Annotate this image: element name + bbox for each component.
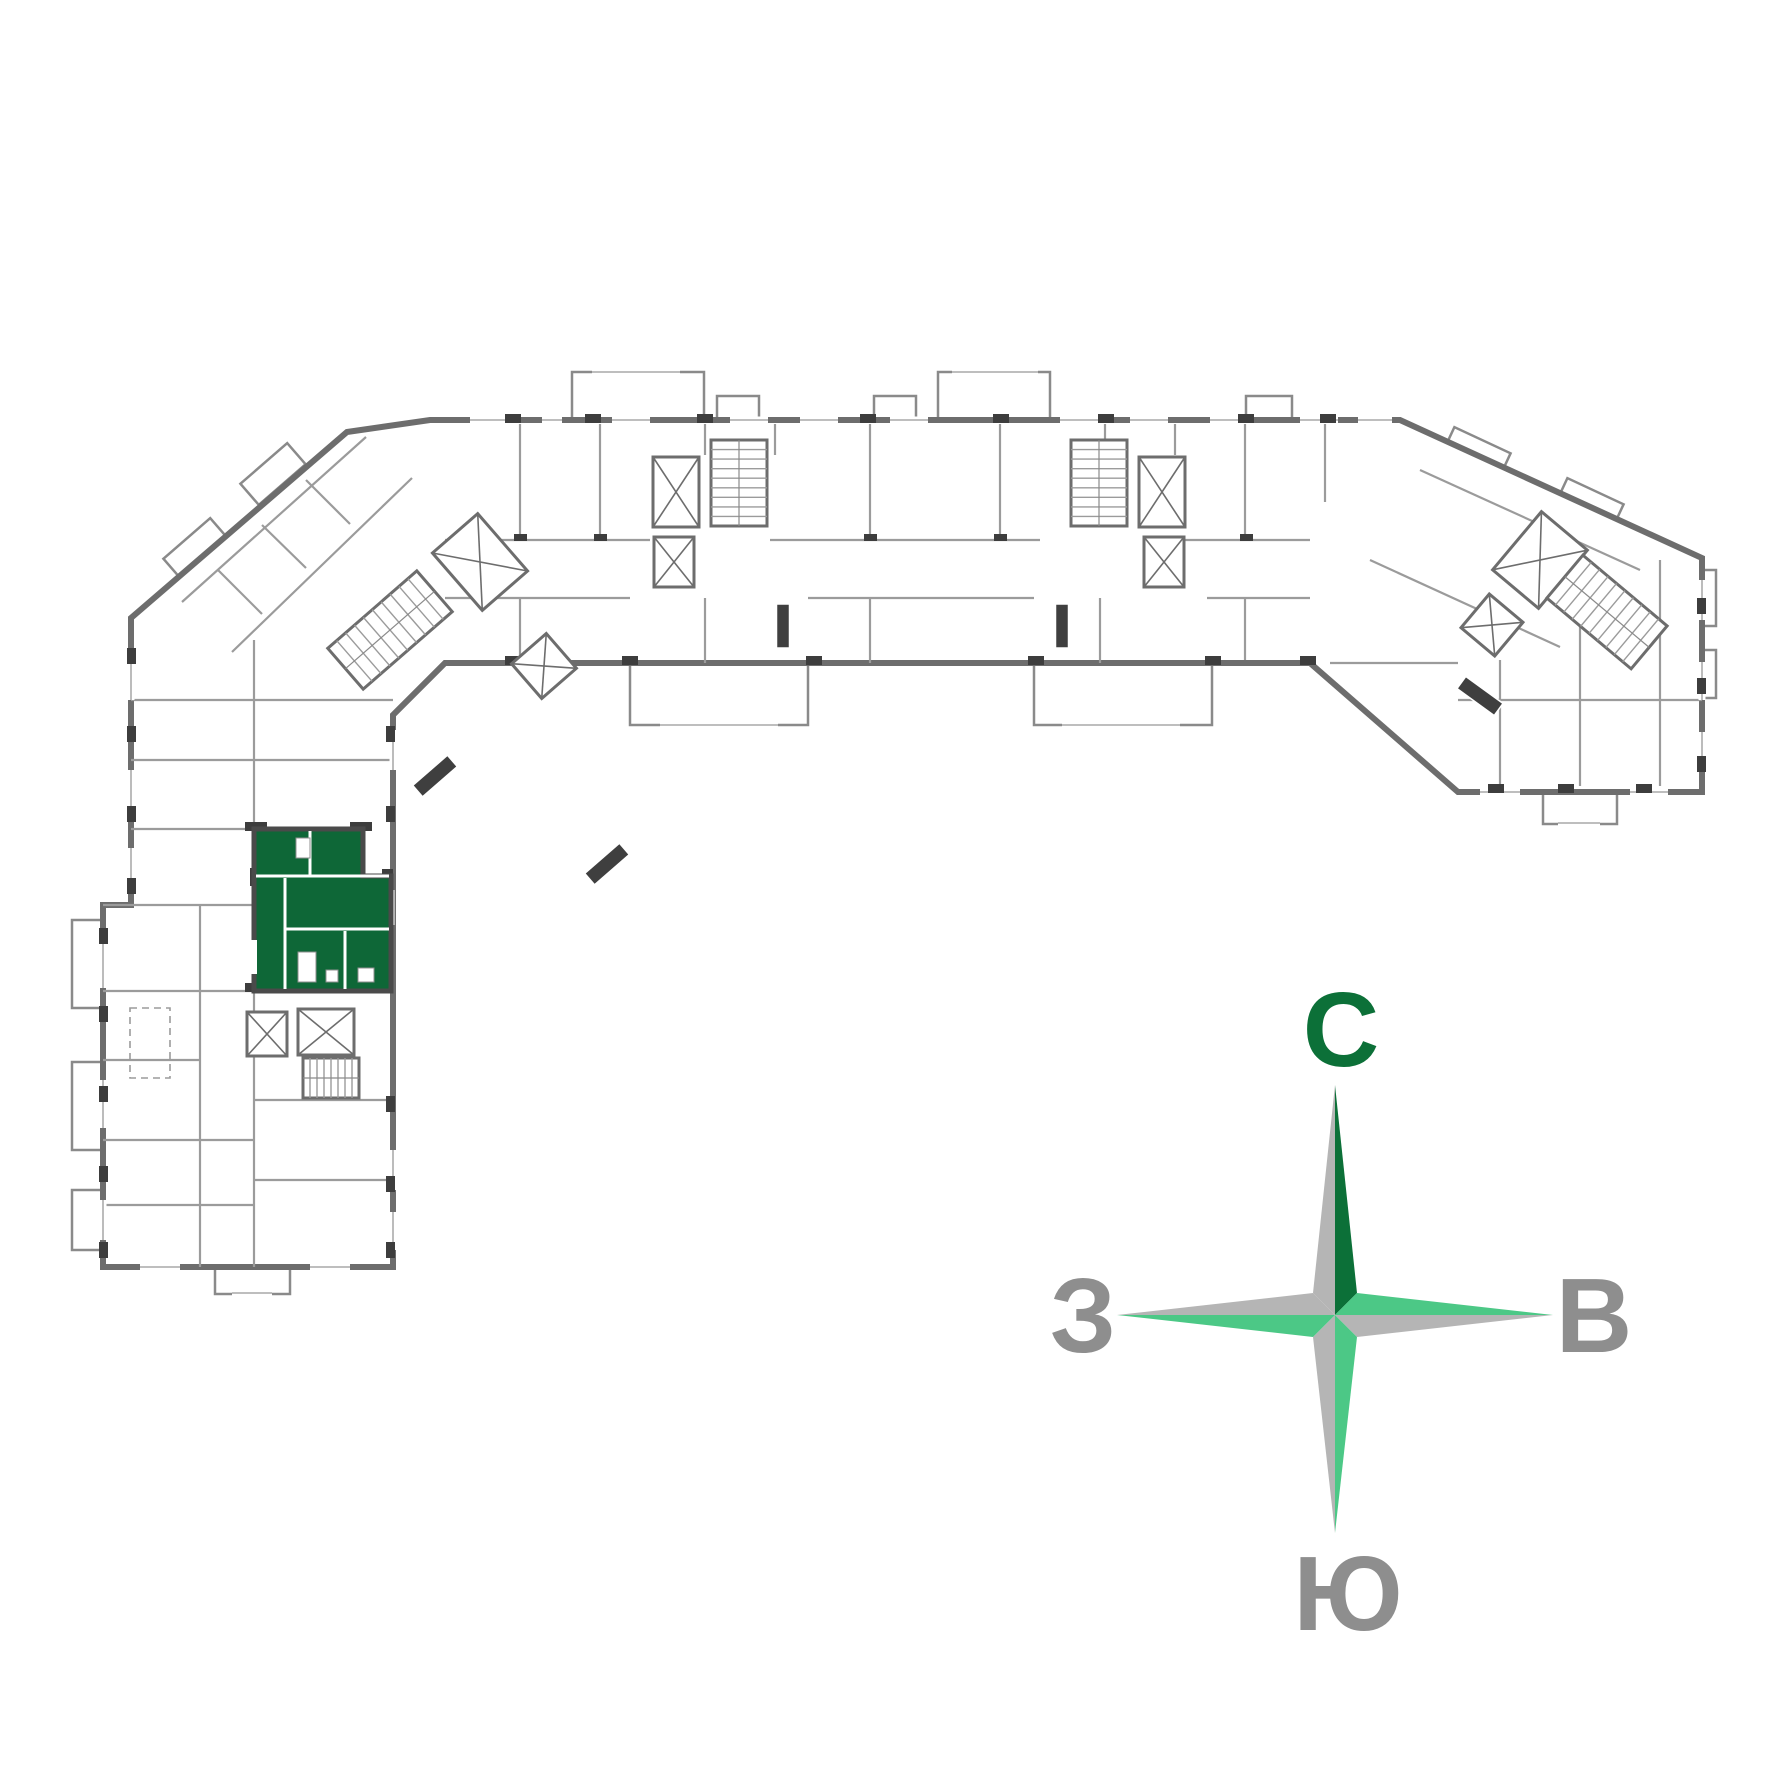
compass-south-right <box>1335 1315 1357 1533</box>
wall-pier <box>1320 414 1336 423</box>
wall-pier <box>386 1242 395 1258</box>
elevator-shaft <box>654 537 694 587</box>
compass-label-east: В <box>1556 1257 1633 1375</box>
wall-pier <box>127 726 136 742</box>
balcony <box>72 1062 103 1150</box>
compass-label-north: С <box>1303 971 1380 1089</box>
wall-pier <box>1488 784 1504 793</box>
wall-pier <box>1205 656 1221 665</box>
compass-label-south: Ю <box>1293 1535 1402 1653</box>
wall-pier <box>1636 784 1652 793</box>
wall-pier <box>127 806 136 822</box>
entrance-door-block <box>413 755 458 796</box>
wall-pier <box>386 1096 395 1112</box>
elevator-shaft <box>1139 457 1185 527</box>
stairwell <box>303 1058 359 1098</box>
wall-pier <box>99 1006 108 1022</box>
elevator-shaft <box>298 1009 354 1055</box>
wall-pier <box>99 928 108 944</box>
stairwell <box>711 440 767 526</box>
wall-pier <box>99 1166 108 1182</box>
wall-pier <box>1098 414 1114 423</box>
balcony <box>630 663 808 725</box>
balcony <box>874 396 916 420</box>
apartment-fixture <box>298 952 316 982</box>
wall-pier <box>99 1242 108 1258</box>
balcony <box>717 396 759 420</box>
elevator-shaft <box>653 457 699 527</box>
compass-west-top <box>1117 1293 1335 1315</box>
wall-pier <box>994 534 1007 541</box>
floor-plan-page: СЗВЮ <box>0 0 1776 1776</box>
wall-pier <box>99 1086 108 1102</box>
wall-pier <box>993 414 1009 423</box>
wall-pier <box>1697 598 1706 614</box>
balcony <box>1543 792 1617 824</box>
wall-pier <box>1300 656 1316 665</box>
compass-label-west: З <box>1050 1257 1116 1375</box>
wall-pier <box>127 878 136 894</box>
wall-pier <box>1240 534 1253 541</box>
wall-pier <box>386 1176 395 1192</box>
wall-pier <box>594 534 607 541</box>
apartment-fixture <box>358 968 374 982</box>
wall-pier <box>585 414 601 423</box>
compass-north-right <box>1335 1085 1357 1315</box>
compass-east-top <box>1335 1293 1553 1315</box>
balcony <box>72 920 103 1008</box>
wall-pier <box>1028 656 1044 665</box>
wall-pier <box>697 414 713 423</box>
wall-pier <box>514 534 527 541</box>
wall-pier <box>1697 756 1706 772</box>
elevator-shaft <box>1144 537 1184 587</box>
stairwell <box>1071 440 1127 526</box>
entrance-door-block <box>1056 604 1069 648</box>
balcony <box>938 372 1050 420</box>
compass-west-bottom <box>1117 1315 1335 1337</box>
balcony <box>1034 663 1212 725</box>
elevator-shaft <box>247 1012 287 1056</box>
apartment-door-gap <box>251 940 257 974</box>
compass-east-bottom <box>1335 1315 1553 1337</box>
wall-pier <box>860 414 876 423</box>
apartment-fixture <box>326 970 338 982</box>
apartment-fixture <box>296 838 310 858</box>
balcony <box>72 1190 103 1250</box>
wall-pier <box>864 534 877 541</box>
wall-pier <box>505 414 521 423</box>
compass-south-left <box>1313 1315 1335 1533</box>
compass-north-left <box>1313 1085 1335 1315</box>
entrance-door-block <box>585 843 630 884</box>
wall-pier <box>1238 414 1254 423</box>
wall-pier <box>1558 784 1574 793</box>
floor-plan-svg: СЗВЮ <box>0 0 1776 1776</box>
wall-pier <box>386 806 395 822</box>
wall-pier <box>127 648 136 664</box>
entrance-door-block <box>777 604 790 648</box>
wall-pier <box>622 656 638 665</box>
compass-rose: СЗВЮ <box>1050 971 1632 1653</box>
wall-pier <box>386 726 395 742</box>
balcony <box>572 372 704 420</box>
wall-pier <box>1697 678 1706 694</box>
wall-pier <box>806 656 822 665</box>
